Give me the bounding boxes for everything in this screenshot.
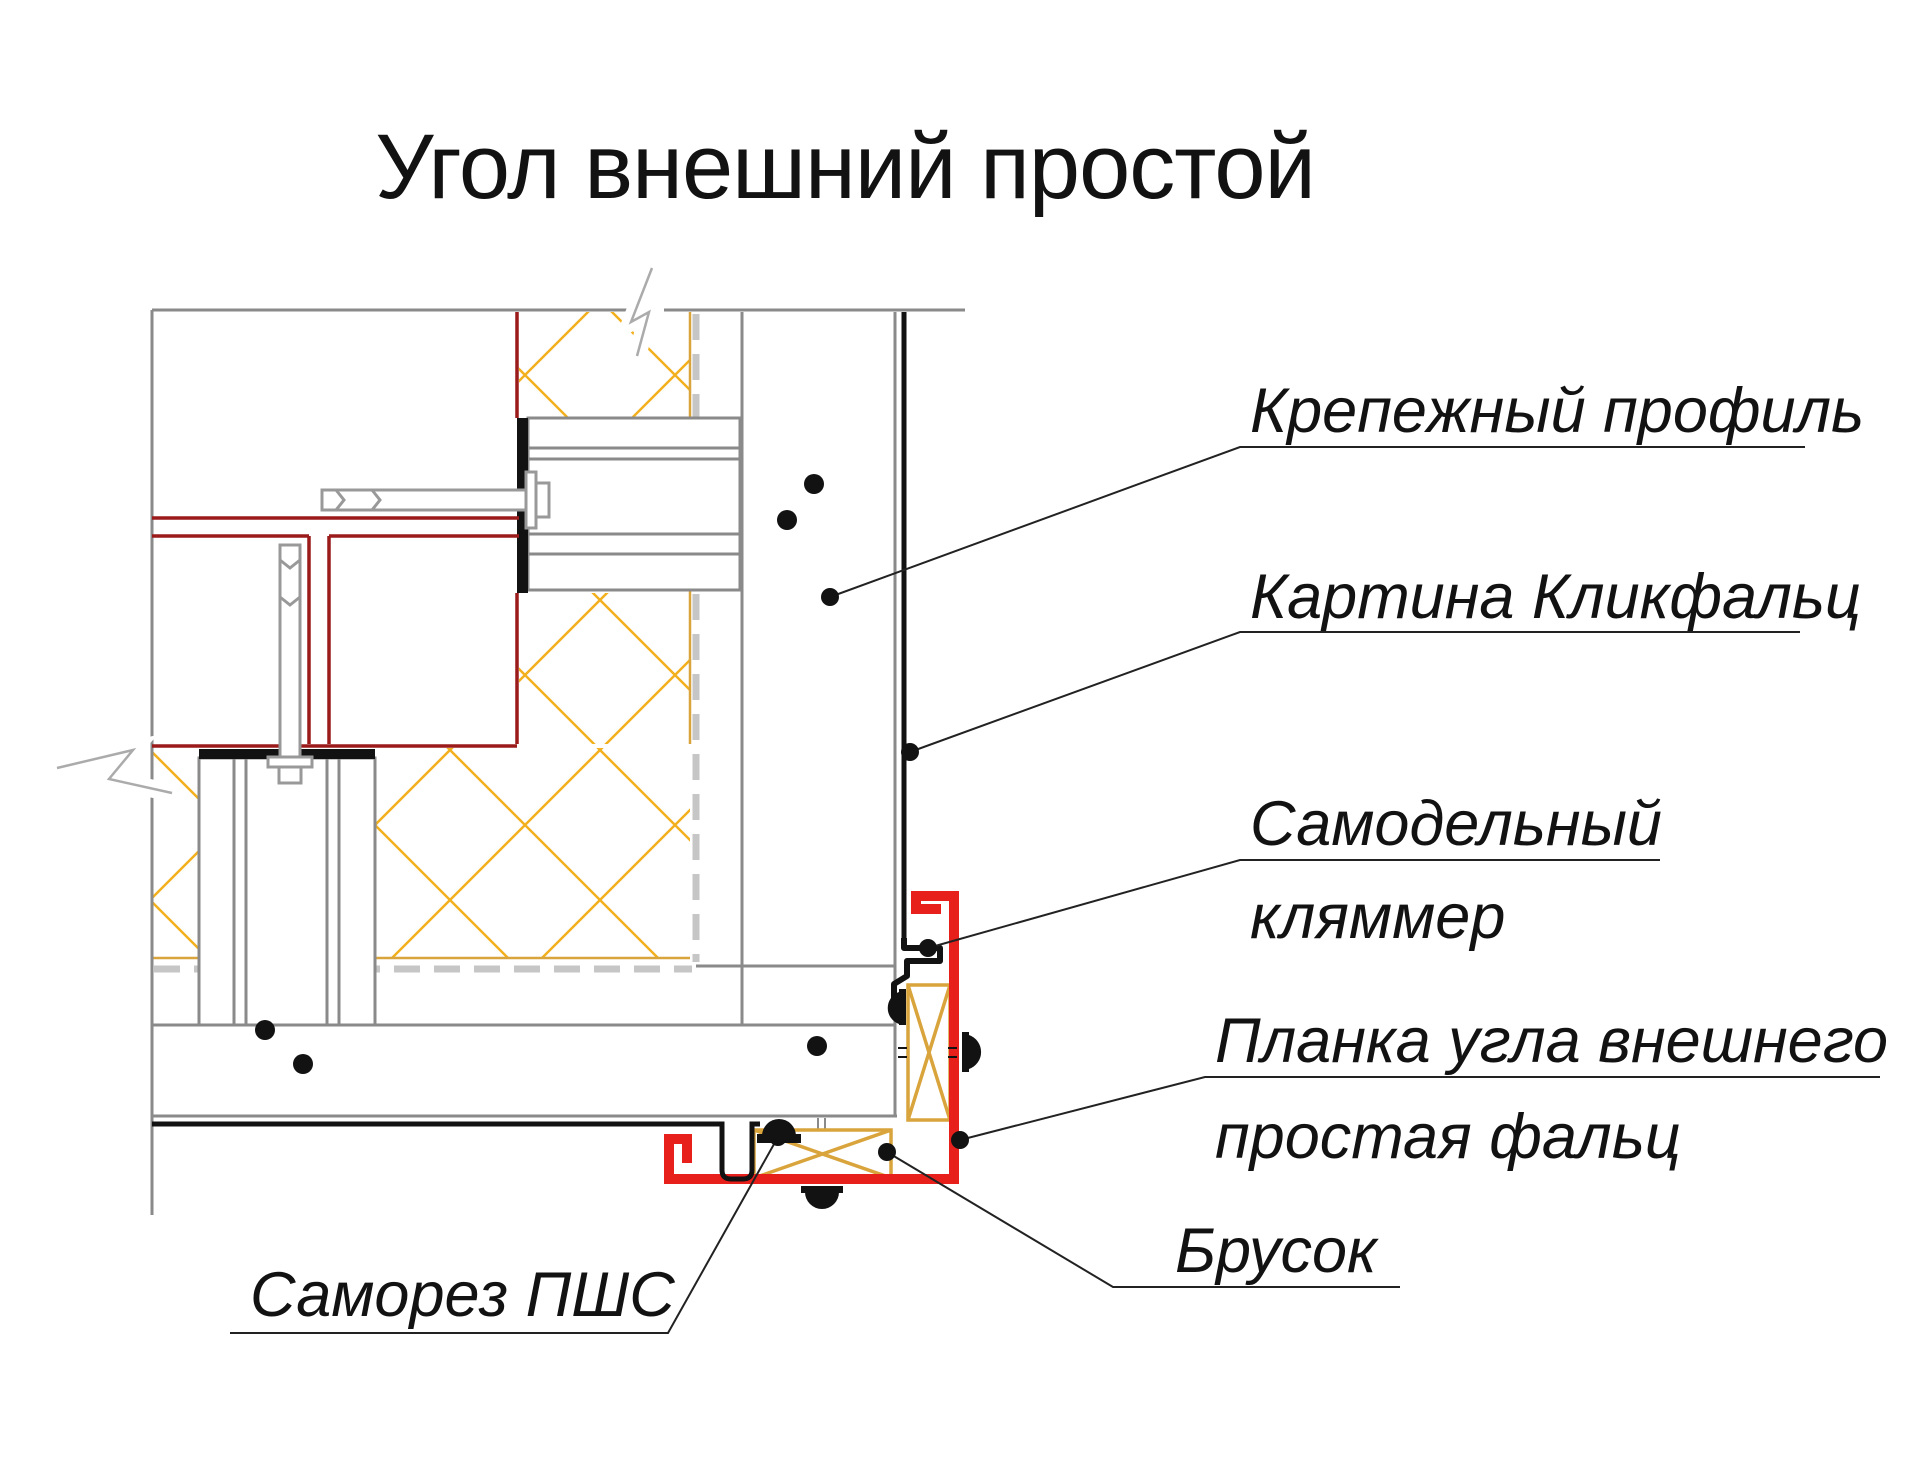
label-screw: Саморез ПШС [250,1260,675,1330]
inner-wall-lines [152,312,519,746]
label-corner-strip-line2: простая фальц [1215,1102,1681,1172]
label-corner-strip-line1: Планка угла внешнего [1215,1006,1888,1076]
corner-detail-drawing: Угол внешний простой Крепежный профиль К… [0,0,1920,1470]
diagram-page: Угол внешний простой Крепежный профиль К… [0,0,1920,1470]
label-block: Брусок [1175,1216,1379,1286]
wood-block-vertical [908,985,950,1120]
label-fixing-profile: Крепежный профиль [1250,376,1864,446]
corner-strip [669,896,954,1179]
fixing-profile-bottom [199,749,375,1025]
screw-under-strip [801,1186,843,1209]
label-panel: Картина Кликфальц [1250,562,1861,632]
label-klammer-line1: Самодельный [1250,789,1662,859]
screw-left-of-block [888,989,906,1025]
label-klammer-line2: кляммер [1250,882,1505,952]
screw-right-of-strip [898,1032,981,1072]
page-title: Угол внешний простой [375,116,1315,218]
